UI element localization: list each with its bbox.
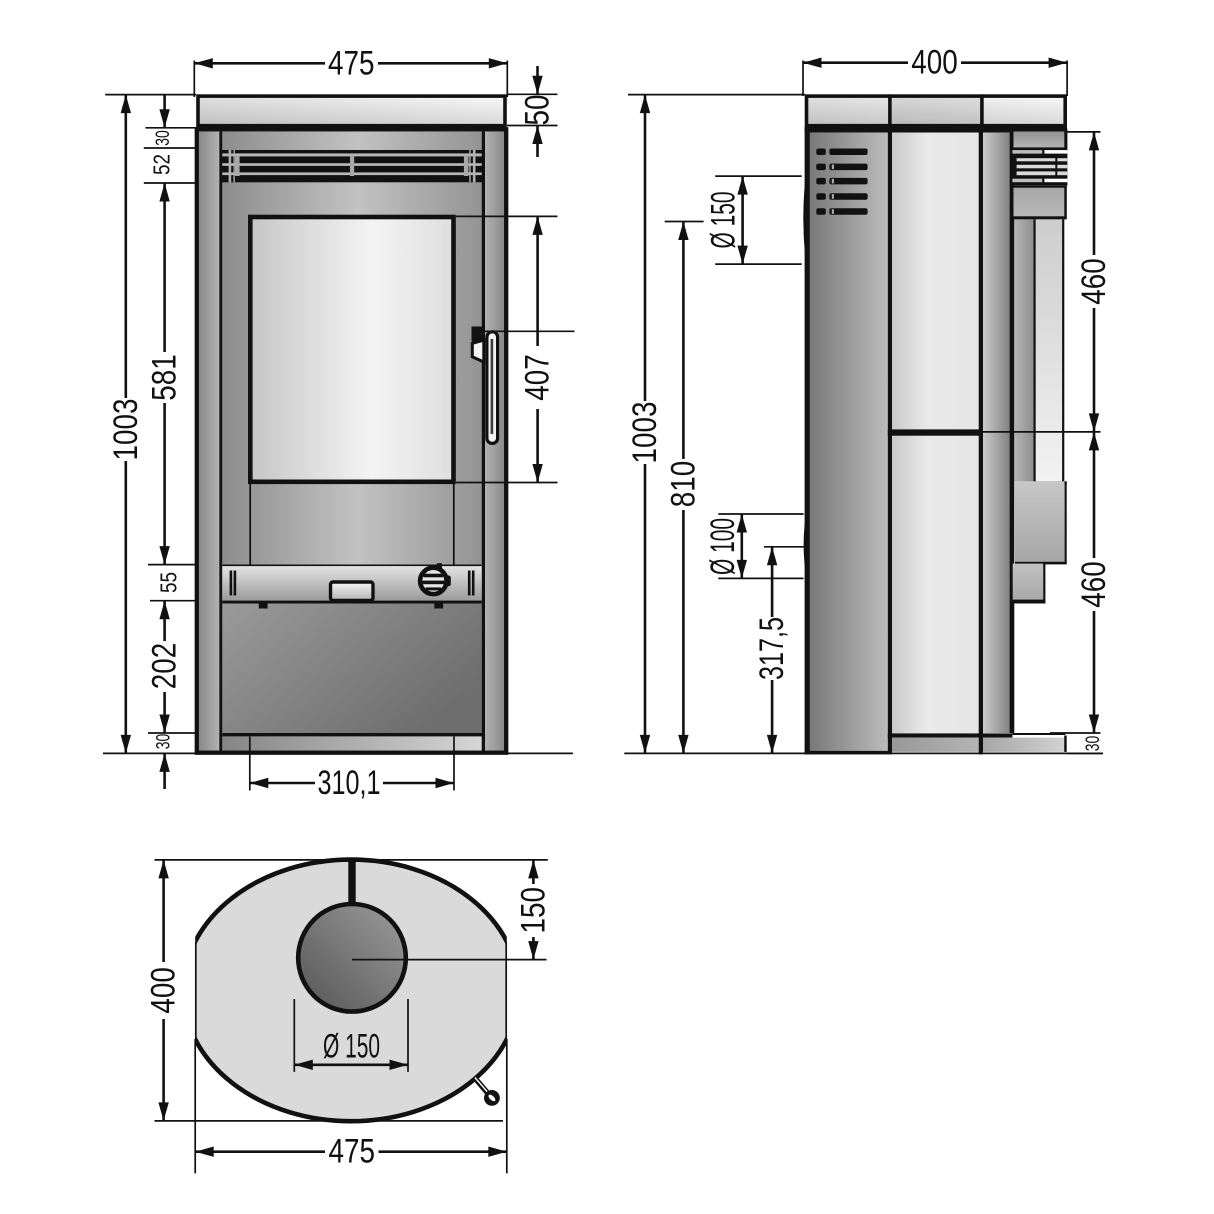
svg-text:460: 460 xyxy=(1075,561,1113,608)
svg-text:475: 475 xyxy=(329,1133,376,1171)
svg-text:52: 52 xyxy=(149,154,175,175)
svg-text:Ø 150: Ø 150 xyxy=(705,192,743,249)
svg-text:400: 400 xyxy=(911,44,958,82)
svg-text:30: 30 xyxy=(154,734,175,750)
svg-text:Ø 150: Ø 150 xyxy=(323,1028,380,1066)
svg-text:55: 55 xyxy=(156,572,182,593)
svg-text:202: 202 xyxy=(146,643,184,690)
svg-text:30: 30 xyxy=(1083,736,1104,752)
svg-text:317,5: 317,5 xyxy=(753,617,791,680)
svg-text:581: 581 xyxy=(146,354,184,401)
svg-text:810: 810 xyxy=(664,461,702,508)
svg-text:1003: 1003 xyxy=(107,399,145,461)
svg-text:30: 30 xyxy=(153,130,174,146)
svg-text:407: 407 xyxy=(519,354,557,401)
svg-text:310,1: 310,1 xyxy=(318,764,381,802)
svg-text:150: 150 xyxy=(514,887,552,934)
svg-text:475: 475 xyxy=(328,44,375,82)
svg-text:460: 460 xyxy=(1075,258,1113,305)
svg-text:1003: 1003 xyxy=(626,402,664,464)
svg-text:Ø 100: Ø 100 xyxy=(704,518,742,575)
svg-text:400: 400 xyxy=(145,967,183,1014)
svg-text:50: 50 xyxy=(519,95,557,126)
